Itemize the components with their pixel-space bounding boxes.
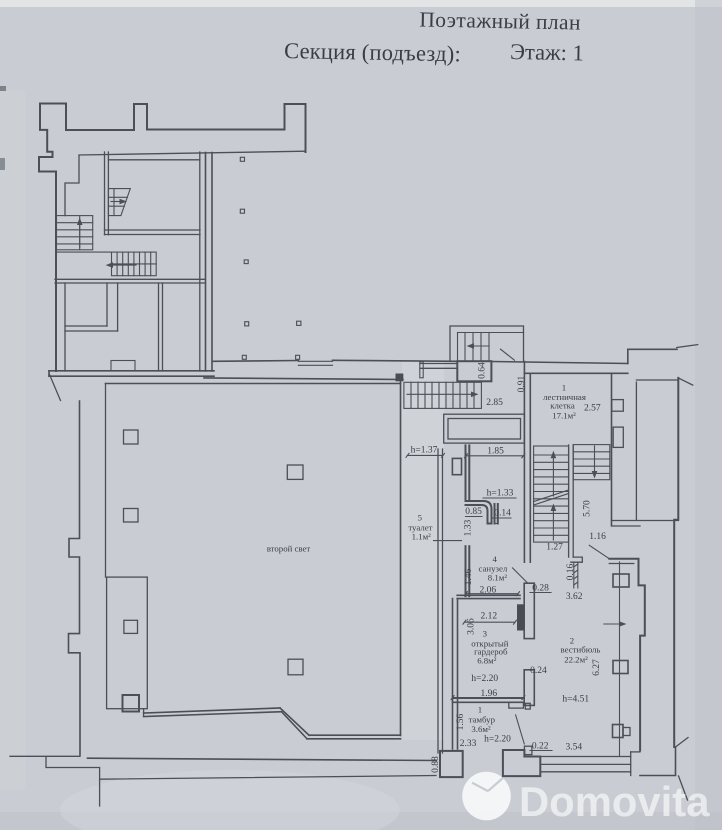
svg-text:1.27: 1.27 — [546, 543, 563, 553]
svg-text:3.06: 3.06 — [467, 618, 477, 635]
svg-text:1.16: 1.16 — [589, 532, 606, 542]
svg-text:1.46: 1.46 — [464, 568, 474, 585]
svg-text:h=2.20: h=2.20 — [484, 735, 511, 745]
svg-text:1.33: 1.33 — [464, 519, 474, 536]
svg-text:2.85: 2.85 — [486, 398, 503, 408]
svg-text:0.85: 0.85 — [465, 507, 482, 517]
svg-text:1: 1 — [478, 705, 482, 715]
svg-text:1.56: 1.56 — [456, 713, 466, 730]
svg-text:22.2м²: 22.2м² — [564, 655, 588, 665]
svg-text:0.16: 0.16 — [566, 563, 576, 580]
svg-text:17.1м²: 17.1м² — [552, 411, 576, 421]
svg-text:вестибюль: вестибюль — [561, 645, 601, 655]
svg-text:второй свет: второй свет — [267, 544, 311, 554]
svg-text:1: 1 — [562, 383, 566, 393]
svg-text:0.64: 0.64 — [477, 362, 487, 379]
svg-text:8.1м²: 8.1м² — [488, 573, 508, 583]
svg-text:2.33: 2.33 — [460, 739, 477, 749]
svg-text:5.70: 5.70 — [583, 500, 593, 517]
svg-text:Domovita: Domovita — [519, 778, 710, 825]
svg-text:6.8м²: 6.8м² — [477, 655, 497, 665]
svg-text:0.14: 0.14 — [494, 509, 511, 519]
svg-text:h=4.51: h=4.51 — [562, 694, 589, 704]
svg-text:0.24: 0.24 — [530, 666, 547, 676]
svg-text:Поэтажный план: Поэтажный план — [419, 7, 581, 34]
svg-text:h=2.20: h=2.20 — [471, 674, 498, 684]
svg-text:Этаж: 1: Этаж: 1 — [510, 39, 584, 65]
svg-text:1.1м²: 1.1м² — [412, 532, 432, 542]
svg-text:3.54: 3.54 — [565, 742, 582, 752]
svg-text:4: 4 — [492, 554, 497, 564]
svg-text:5: 5 — [418, 513, 423, 523]
svg-text:0.88: 0.88 — [431, 756, 441, 773]
svg-text:клетка: клетка — [550, 401, 575, 411]
svg-text:0.91: 0.91 — [517, 375, 527, 392]
svg-text:3.6м²: 3.6м² — [471, 724, 491, 734]
svg-text:3: 3 — [483, 629, 488, 639]
svg-text:2.12: 2.12 — [480, 612, 497, 622]
svg-text:2.57: 2.57 — [584, 404, 601, 414]
svg-text:1.85: 1.85 — [487, 447, 504, 457]
svg-text:тамбур: тамбур — [469, 715, 496, 725]
svg-text:6.27: 6.27 — [592, 659, 602, 676]
svg-text:h=1.33: h=1.33 — [487, 489, 514, 499]
svg-text:Секция (подъезд):: Секция (подъезд): — [284, 38, 461, 66]
svg-text:3.62: 3.62 — [566, 592, 583, 602]
svg-text:h=1.37: h=1.37 — [411, 446, 438, 456]
